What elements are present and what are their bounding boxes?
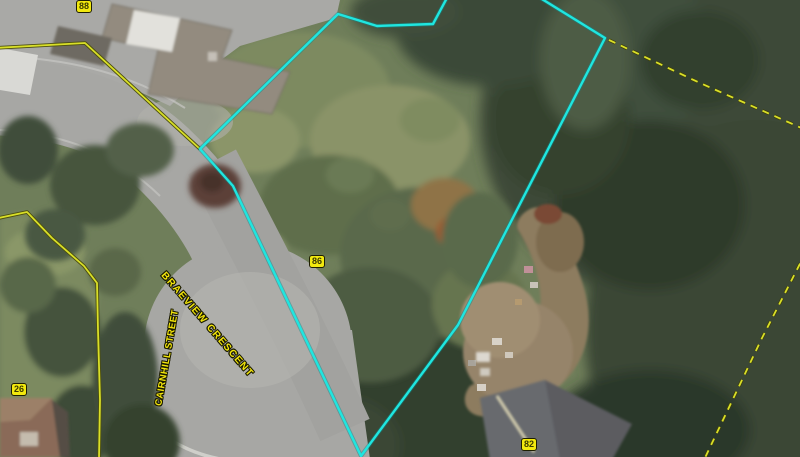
building-26 (0, 398, 70, 457)
parcel-label-82[interactable]: 82 (521, 438, 537, 451)
aerial-photo (0, 0, 800, 457)
parcel-label-86[interactable]: 86 (309, 255, 325, 268)
parcel-label-88[interactable]: 88 (76, 0, 92, 13)
parcel-label-26[interactable]: 26 (11, 383, 27, 396)
map-viewport[interactable]: 88 86 26 82 BRAEVIEW CRESCENT CAIRNHILL … (0, 0, 800, 457)
